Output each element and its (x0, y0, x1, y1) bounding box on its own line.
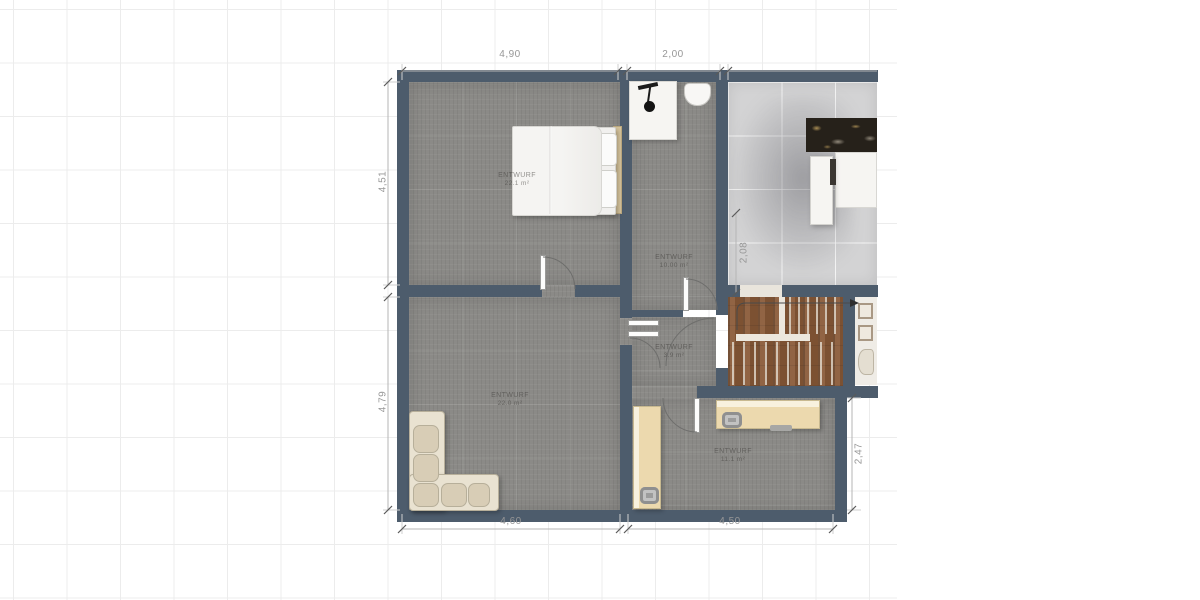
wall-hall-office-b (697, 386, 878, 398)
hallway-double-door-leaf[interactable] (628, 320, 659, 326)
stairs-landing-strip (736, 334, 810, 341)
bedroom-door[interactable] (540, 255, 546, 290)
stairs-landing-opening (740, 285, 782, 297)
dim-bottom-1: 4,60 (489, 516, 533, 527)
hallway-double-door-leaf[interactable] (628, 331, 659, 337)
office-door-opening (632, 386, 697, 398)
wall-office-right (835, 398, 847, 510)
sofa-cushion (413, 425, 439, 453)
dim-bottom-2: 4,50 (708, 516, 752, 527)
wall-bedroom-living-a (397, 285, 542, 297)
utility-appliance[interactable] (858, 325, 873, 341)
sofa-cushion (468, 483, 490, 507)
sofa-cushion (413, 454, 439, 482)
dim-left-2: 4,79 (378, 380, 389, 424)
wall-hall-office-a (620, 386, 632, 398)
wall-bathroom-bottom (632, 310, 683, 317)
living-label: ENTWURF22.0 m² (491, 392, 529, 408)
hallway-label: ENTWURF3.9 m² (655, 344, 693, 360)
shower-drain-icon (644, 101, 655, 112)
sofa-cushion (413, 483, 439, 507)
stairs-rail (779, 297, 785, 335)
wall-kitchen-stairs-a (716, 285, 740, 297)
bedroom-door-opening (542, 285, 575, 297)
utility-sink[interactable] (858, 349, 874, 375)
bathroom-door[interactable] (683, 277, 689, 311)
desk-top-chair[interactable] (722, 412, 742, 428)
kitchen-sink (830, 159, 836, 185)
bed[interactable] (512, 126, 622, 214)
bathroom-label: ENTWURF10.00 m² (655, 254, 693, 270)
dim-top-2: 2,00 (651, 49, 695, 60)
stairs[interactable] (728, 297, 843, 386)
kitchen-counter-marble[interactable] (806, 118, 877, 152)
wall-bedroom-living-b (575, 285, 620, 297)
office-label: ENTWURF11.1 m² (714, 448, 752, 464)
wall-bottom (397, 510, 847, 522)
utility-appliance[interactable] (858, 303, 873, 319)
dim-left-1: 4,51 (378, 160, 389, 204)
dim-top-1: 4,90 (488, 49, 532, 60)
dim-office-depth: 2,47 (854, 432, 865, 476)
wall-kitchen-stairs-b (782, 285, 878, 297)
sofa-cushion (441, 483, 467, 507)
kitchen-counter-white[interactable] (835, 152, 877, 208)
floorplan-canvas: 4,90 2,00 4,51 4,79 4,60 4,50 2,08 2,47 … (0, 0, 1200, 600)
office-door[interactable] (694, 398, 700, 433)
desk-left-chair[interactable] (640, 487, 659, 504)
wall-center-lower (620, 345, 632, 510)
desk-accessory (770, 425, 792, 431)
bed-duvet-fold (549, 126, 552, 214)
sofa[interactable] (409, 411, 499, 511)
bedroom-label: ENTWURF22.1 m² (498, 172, 536, 188)
bed-duvet (512, 126, 602, 216)
dim-kitchen-depth: 2,08 (739, 231, 750, 275)
wall-bath-right-upper (716, 82, 728, 315)
wall-stairs-right (843, 290, 855, 397)
